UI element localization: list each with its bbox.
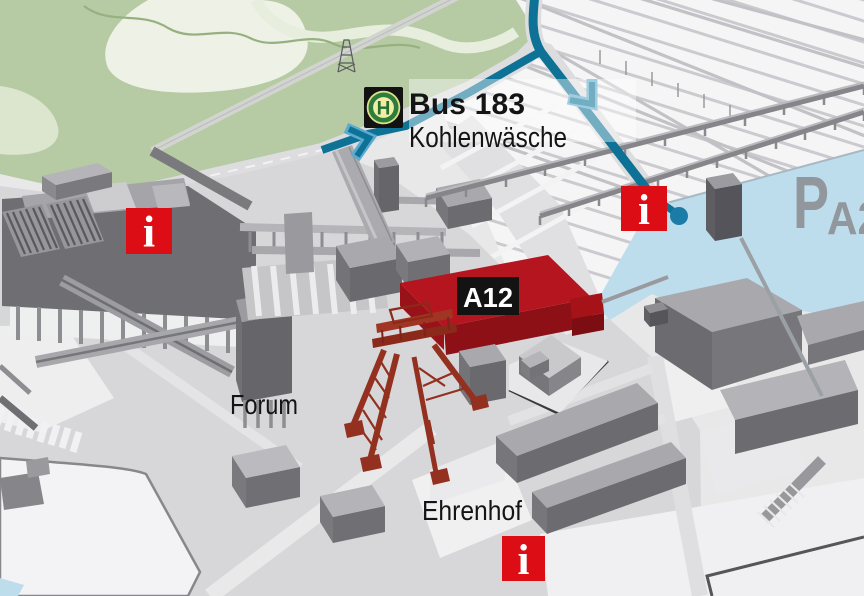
svg-text:Bus 183: Bus 183 — [409, 88, 525, 121]
svg-text:Kohlenwäsche: Kohlenwäsche — [409, 122, 567, 154]
svg-text:A12: A12 — [463, 282, 513, 313]
svg-text:Ehrenhof: Ehrenhof — [422, 495, 522, 526]
svg-text:Forum: Forum — [230, 389, 298, 420]
svg-text:P: P — [793, 161, 829, 244]
svg-text:i: i — [518, 537, 530, 584]
svg-text:H: H — [377, 99, 391, 120]
svg-text:i: i — [143, 208, 155, 257]
svg-text:i: i — [638, 187, 650, 234]
svg-text:A2: A2 — [827, 192, 864, 244]
